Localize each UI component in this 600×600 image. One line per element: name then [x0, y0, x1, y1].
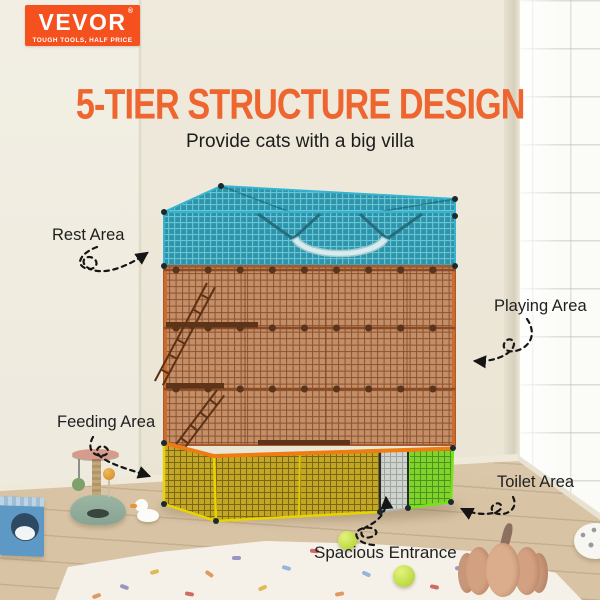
- product-showcase: VEVOR® TOUGH TOOLS, HALF PRICE 5-TIER ST…: [0, 0, 600, 600]
- callout-spacious-entrance: Spacious Entrance: [314, 543, 457, 563]
- vevor-logo: VEVOR® TOUGH TOOLS, HALF PRICE: [25, 5, 140, 46]
- page-title: 5-TIER STRUCTURE DESIGN: [0, 84, 600, 127]
- callout-playing-area: Playing Area: [494, 297, 587, 316]
- logo-wordmark: VEVOR®: [38, 9, 126, 36]
- feeding-area-arrow: [90, 437, 149, 476]
- toilet-area-arrow: [462, 497, 515, 514]
- callout-rest-area: Rest Area: [52, 226, 124, 245]
- registered-mark: ®: [128, 8, 135, 15]
- callout-feeding-area: Feeding Area: [57, 413, 155, 432]
- logo-tagline: TOUGH TOOLS, HALF PRICE: [25, 37, 140, 44]
- page-subtitle: Provide cats with a big villa: [0, 131, 600, 153]
- playing-area-arrow: [475, 319, 532, 361]
- callout-toilet-area: Toilet Area: [497, 473, 574, 492]
- entrance-arrow: [356, 498, 386, 545]
- rest-area-arrow: [80, 247, 147, 271]
